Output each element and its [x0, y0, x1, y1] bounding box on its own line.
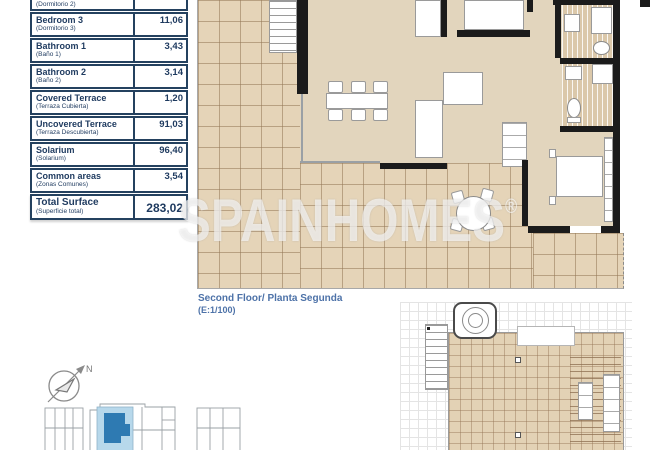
- shower: [592, 64, 613, 84]
- row-subtitle: (Dormitorio 3): [36, 25, 133, 33]
- toilet: [593, 41, 610, 55]
- terrace-tiles-right: [533, 233, 624, 289]
- total-name: Total Surface: [36, 197, 133, 208]
- sliding-door: [300, 161, 380, 163]
- bed: [556, 156, 603, 197]
- stairs: [425, 324, 448, 390]
- table-row: Bedroom 3 (Dormitorio 3) 11,06: [30, 12, 188, 37]
- registered-mark: ®: [505, 196, 517, 218]
- sink: [564, 14, 580, 32]
- row-name: Common areas: [36, 171, 133, 181]
- surface-table: (Dormitorio 2) Bedroom 3 (Dormitorio 3) …: [30, 0, 188, 221]
- pergola-post: [515, 357, 521, 363]
- toilet: [567, 98, 581, 118]
- wall: [601, 226, 620, 233]
- toilet-tank: [567, 117, 581, 123]
- wall: [528, 226, 570, 233]
- bed: [464, 0, 524, 30]
- plan-scale: (E:1/100): [198, 305, 342, 316]
- row-name: Uncovered Terrace: [36, 119, 133, 129]
- stairs: [269, 0, 297, 53]
- floorplan-page: (Dormitorio 2) Bedroom 3 (Dormitorio 3) …: [0, 0, 650, 450]
- sheet-margin: [632, 302, 650, 450]
- row-name: Bedroom 3: [36, 15, 133, 25]
- wall: [441, 0, 447, 37]
- nightstand: [549, 196, 556, 205]
- plan-caption: Second Floor/ Planta Segunda (E:1/100): [198, 293, 342, 316]
- jacuzzi-inner: [468, 313, 483, 328]
- row-value: 96,40: [135, 144, 186, 165]
- dining-chair: [351, 81, 366, 93]
- wall: [522, 160, 528, 226]
- table-row: Solarium (Solarium) 96,40: [30, 142, 188, 167]
- table-total-row: Total Surface (Superficie total) 283,02: [30, 194, 188, 220]
- row-subtitle: (Solarium): [36, 155, 133, 163]
- row-subtitle: (Zonas Comunes): [36, 181, 133, 189]
- row-name: Bathroom 1: [36, 41, 133, 51]
- row-value: 3,43: [135, 40, 186, 61]
- table-row: Covered Terrace (Terraza Cubierta) 1,20: [30, 90, 188, 115]
- wall: [560, 58, 613, 64]
- total-subtitle: (Superficie total): [36, 208, 133, 216]
- sink: [565, 66, 582, 80]
- wall: [555, 0, 561, 58]
- dining-chair: [351, 109, 366, 121]
- wall: [527, 0, 533, 12]
- plan-title: Second Floor/ Planta Segunda: [198, 293, 342, 305]
- row-name: Bathroom 2: [36, 67, 133, 77]
- row-subtitle: (Terraza Descubierta): [36, 129, 133, 137]
- wall: [553, 0, 613, 5]
- sun-loungers: [603, 374, 620, 432]
- watermark: SPAINHOMES®: [178, 186, 517, 255]
- row-value: 91,03: [135, 118, 186, 139]
- row-value: 11,06: [135, 14, 186, 35]
- closet: [415, 0, 441, 37]
- coffee-table: [443, 72, 483, 105]
- wall: [640, 0, 650, 7]
- site-plan: [42, 400, 247, 450]
- shower: [591, 7, 612, 34]
- wall: [613, 0, 620, 233]
- outdoor-kitchen: [578, 382, 593, 420]
- table-row: Common areas (Zonas Comunes) 3,54: [30, 168, 188, 193]
- floorplan-solarium: [400, 302, 650, 450]
- table-row: Bathroom 1 (Baño 1) 3,43: [30, 38, 188, 63]
- row-subtitle: (Baño 2): [36, 77, 133, 85]
- row-name: Solarium: [36, 145, 133, 155]
- row-subtitle: (Baño 1): [36, 51, 133, 59]
- table-row: Uncovered Terrace (Terraza Descubierta) …: [30, 116, 188, 141]
- row-subtitle: (Terraza Cubierta): [36, 103, 133, 111]
- wardrobe: [604, 137, 613, 222]
- watermark-text: SPAINHOMES: [178, 187, 505, 254]
- roof-opening: [517, 326, 575, 346]
- dining-chair: [373, 81, 388, 93]
- wall: [560, 126, 613, 132]
- sliding-door: [301, 94, 303, 163]
- dining-table: [326, 93, 388, 109]
- row-value: 1,20: [135, 92, 186, 113]
- sofa: [415, 100, 443, 158]
- table-row: Bathroom 2 (Baño 2) 3,14: [30, 64, 188, 89]
- pergola-post: [515, 432, 521, 438]
- wall: [457, 30, 530, 37]
- dining-chair: [373, 109, 388, 121]
- row-value: [135, 0, 186, 9]
- stair-post: [427, 327, 430, 330]
- row-value: 3,14: [135, 66, 186, 87]
- row-name: Covered Terrace: [36, 93, 133, 103]
- dining-chair: [328, 81, 343, 93]
- wall: [297, 0, 308, 94]
- row-subtitle: (Dormitorio 2): [36, 1, 133, 9]
- wall: [380, 163, 447, 169]
- dining-chair: [328, 109, 343, 121]
- jacuzzi: [453, 302, 497, 339]
- table-row: (Dormitorio 2): [30, 0, 188, 11]
- compass-north-label: N: [86, 364, 93, 374]
- nightstand: [549, 149, 556, 158]
